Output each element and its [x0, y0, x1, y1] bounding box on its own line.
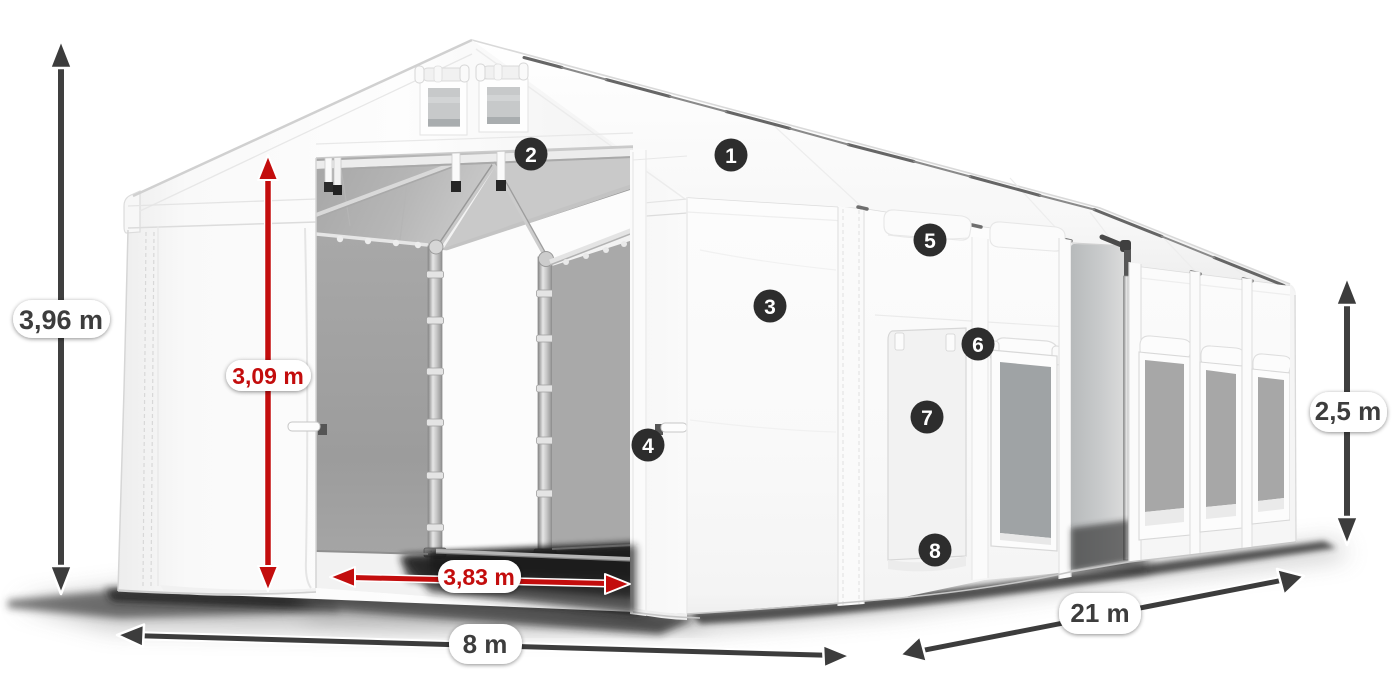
svg-text:2,5 m: 2,5 m — [1315, 396, 1382, 426]
svg-text:8: 8 — [929, 540, 941, 563]
svg-text:8 m: 8 m — [463, 629, 508, 659]
svg-text:3,09 m: 3,09 m — [232, 363, 304, 389]
svg-text:4: 4 — [642, 435, 654, 458]
svg-text:7: 7 — [921, 407, 933, 430]
svg-text:1: 1 — [725, 145, 737, 168]
svg-text:3,96 m: 3,96 m — [19, 305, 103, 335]
svg-text:3: 3 — [764, 296, 776, 319]
svg-text:2: 2 — [525, 144, 537, 167]
svg-text:3,83 m: 3,83 m — [443, 564, 515, 590]
svg-text:6: 6 — [972, 334, 984, 357]
svg-text:21 m: 21 m — [1070, 598, 1129, 628]
svg-text:5: 5 — [924, 230, 936, 253]
